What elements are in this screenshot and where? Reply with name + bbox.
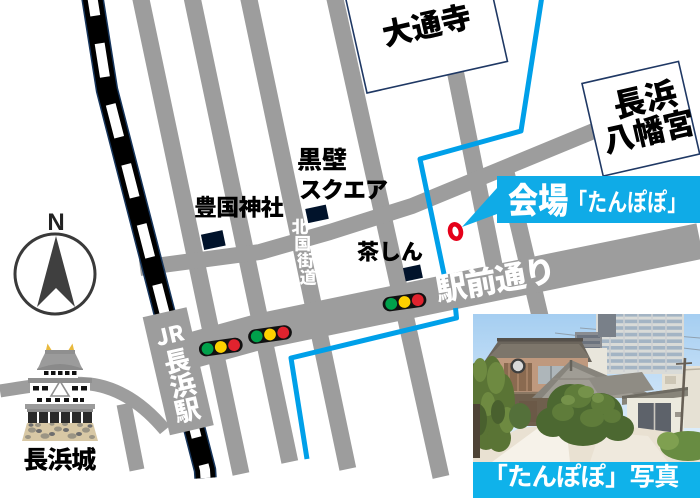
svg-text:N: N xyxy=(47,209,64,236)
